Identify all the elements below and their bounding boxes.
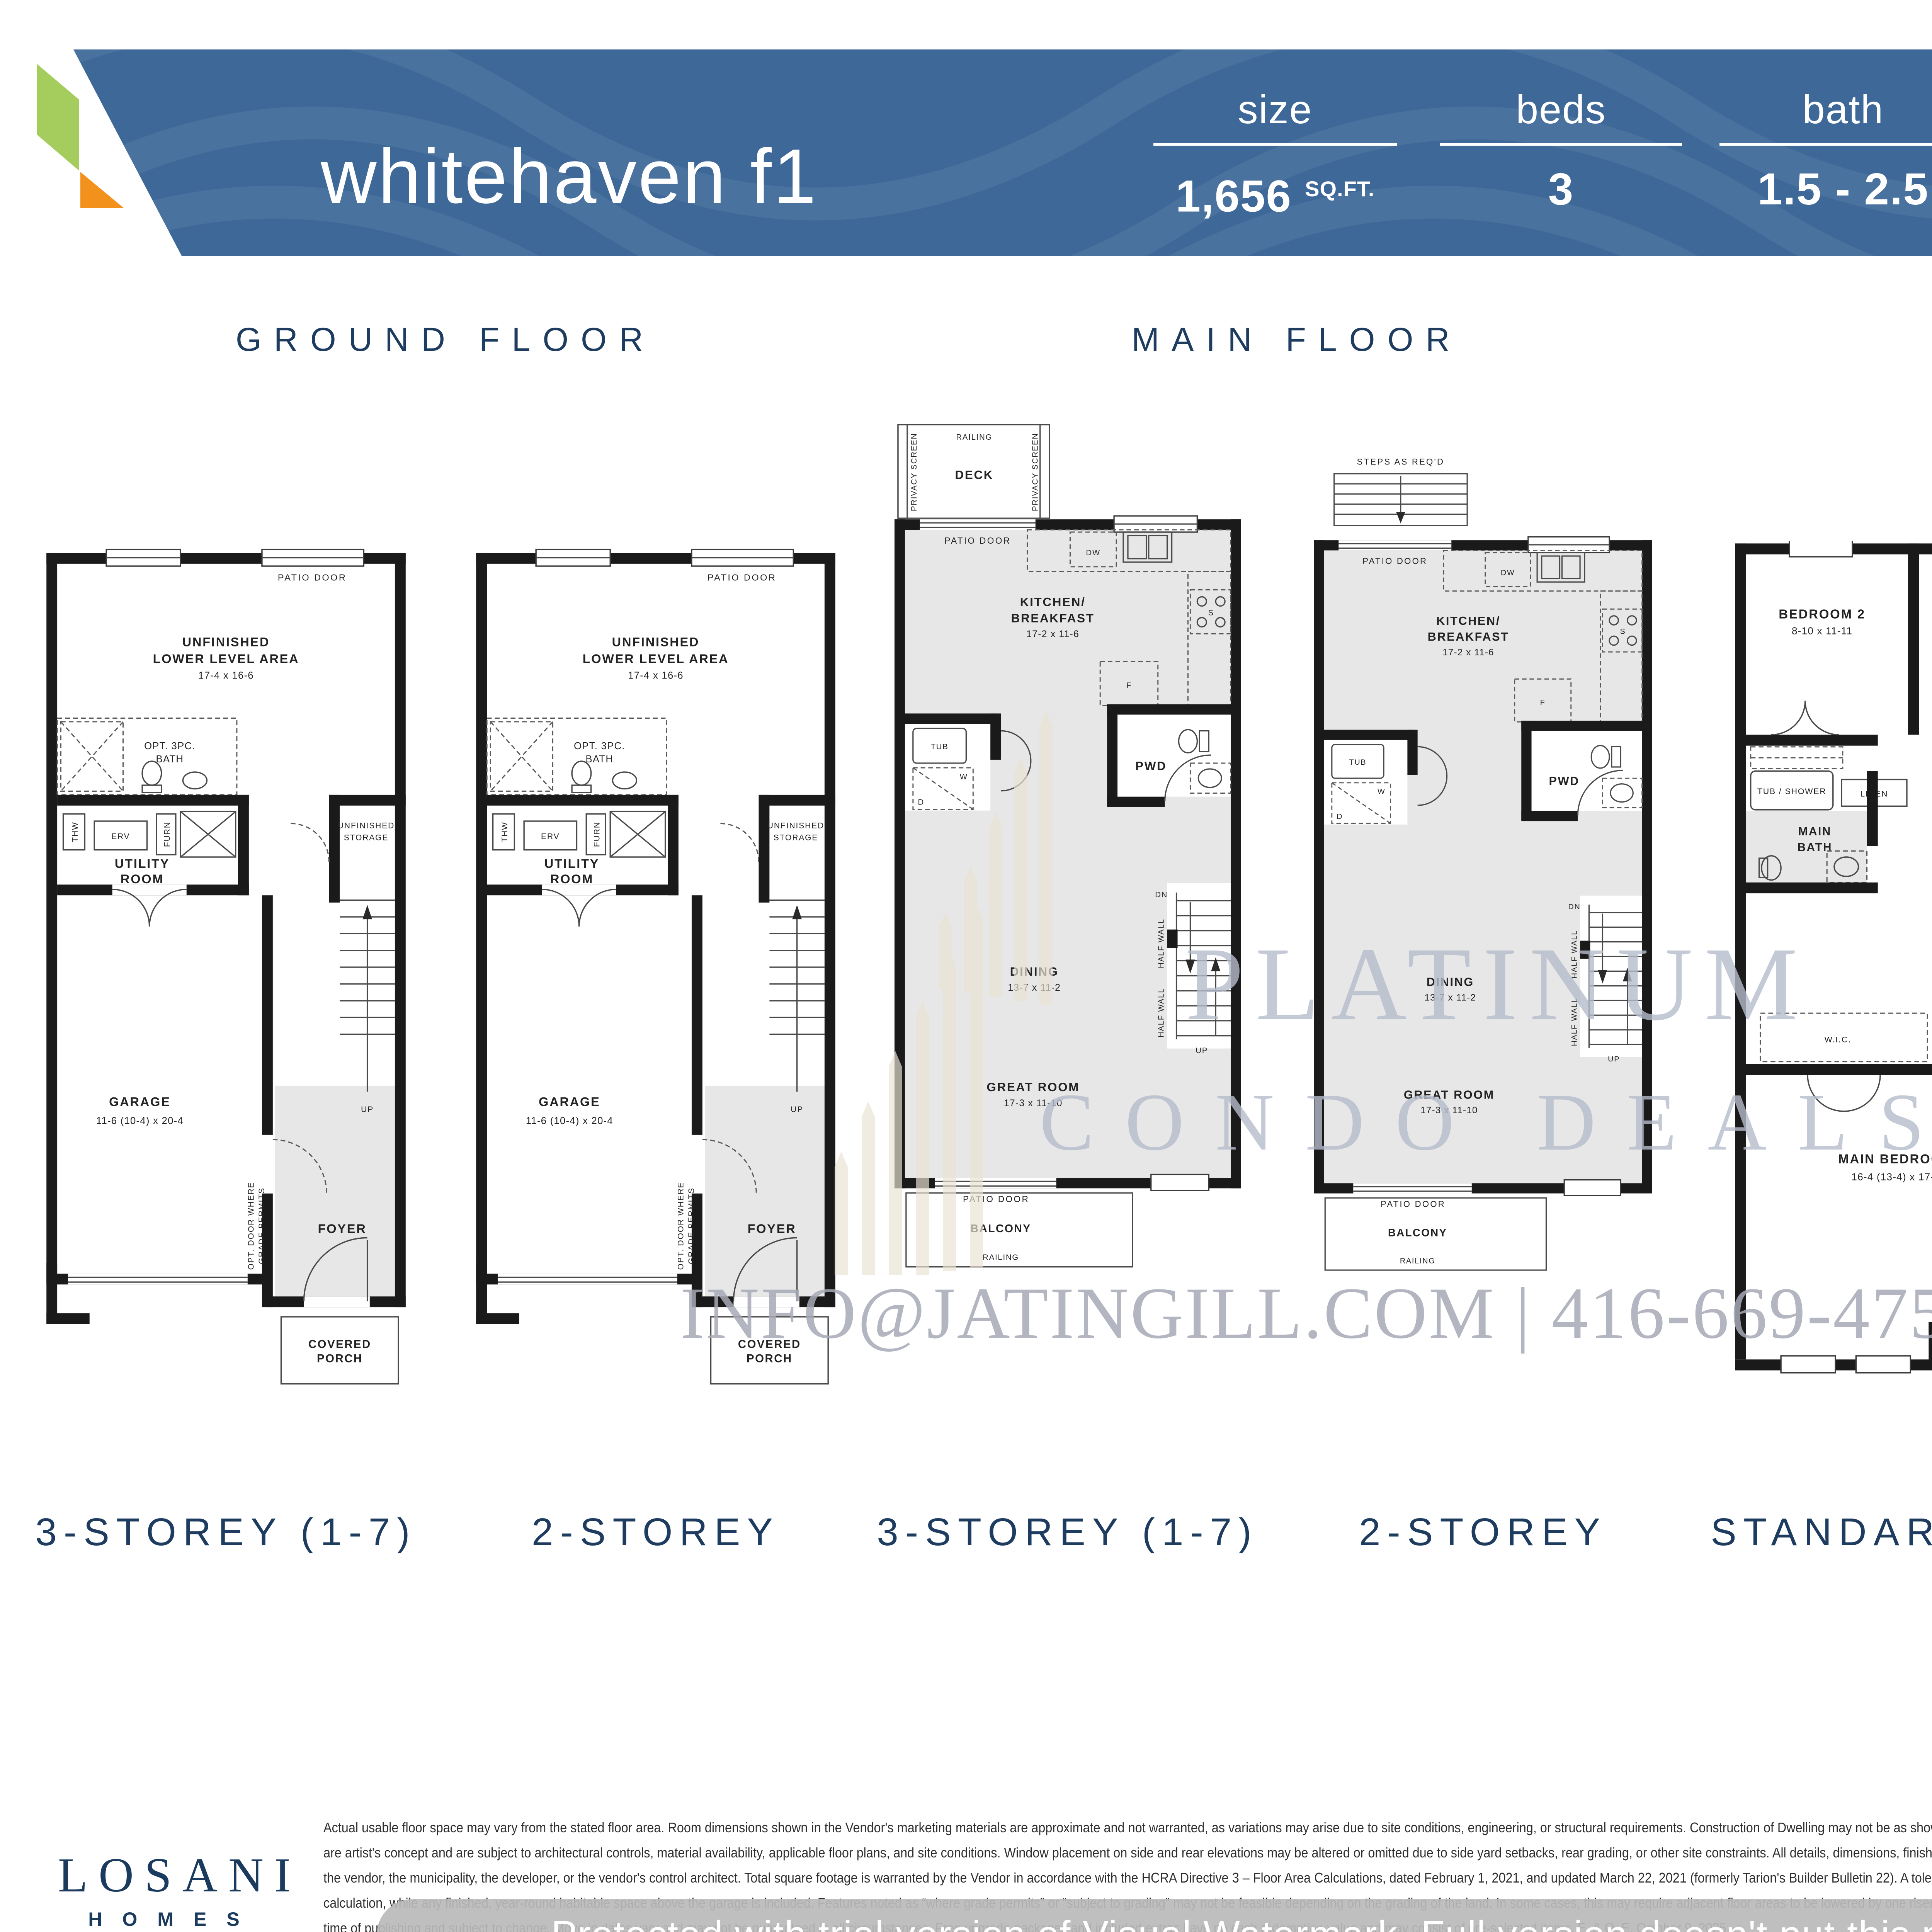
- disclaimer-line-2: are artist's concept and are subject to …: [323, 1846, 1932, 1860]
- plan1-utility-2: ROOM: [121, 872, 164, 886]
- disclaimer-line-1: Actual usable floor space may vary from …: [323, 1821, 1932, 1835]
- plan1-patio-door: PATIO DOOR: [278, 572, 347, 582]
- section-ground-floor: GROUND FLOOR: [136, 321, 755, 359]
- plan1-up: UP: [361, 1105, 374, 1114]
- watermark-line1: PLATINUM: [1034, 923, 1932, 1044]
- stat-size-value: 1,656 SQ.FT.: [1140, 166, 1410, 219]
- plan3-dw: DW: [1086, 549, 1100, 557]
- plan2-patio-door: PATIO DOOR: [707, 572, 776, 582]
- plan1-opt-bath-1: OPT. 3PC.: [144, 741, 196, 752]
- plan3-kitchen-1: KITCHEN/: [1020, 595, 1086, 609]
- plan5-main-bath-1: MAIN: [1798, 825, 1832, 838]
- plan1-furn: FURN: [163, 821, 172, 847]
- plan1-opt-bath-2: BATH: [156, 754, 184, 765]
- plan5-main-bath-2: BATH: [1798, 841, 1832, 854]
- plan4-dn: DN: [1568, 903, 1580, 911]
- plan4-railing-bottom: RAILING: [1400, 1257, 1435, 1265]
- stat-bath-label: bath: [1708, 90, 1932, 130]
- plan1-porch-1: COVERED: [308, 1338, 371, 1350]
- plan3-privacy-left: PRIVACY SCREEN: [910, 433, 918, 511]
- plan3-pwd: PWD: [1135, 759, 1167, 773]
- plan1-erv: ERV: [111, 832, 130, 841]
- plan3-deck: DECK: [955, 468, 993, 481]
- caption-main-2storey: 2-STOREY: [1232, 1510, 1734, 1554]
- stat-beds-value: 3: [1426, 166, 1696, 212]
- plan1-porch-2: PORCH: [317, 1352, 363, 1365]
- plan2-storage-2: STORAGE: [774, 833, 818, 842]
- stat-beds-label: beds: [1426, 90, 1696, 130]
- plan4-kitchen-1: KITCHEN/: [1436, 614, 1500, 628]
- plan3-stove: S: [1208, 609, 1214, 617]
- watermark-contact: INFO@JATINGILL.COM | 416-669-4755: [502, 1271, 1932, 1355]
- caption-second-standard: STANDARD PLAN: [1665, 1510, 1932, 1554]
- plan3-kitchen-dims: 17-2 x 11-6: [1026, 629, 1079, 639]
- plan5-bedroom2-dims: 8-10 x 11-11: [1792, 625, 1852, 636]
- stat-size-label: size: [1140, 90, 1410, 130]
- plan2-erv: ERV: [541, 832, 560, 841]
- plan2-unfinished-2: LOWER LEVEL AREA: [583, 652, 729, 666]
- plan1-unfinished-1: UNFINISHED: [182, 635, 270, 649]
- plan1-unfinished-dims: 17-4 x 16-6: [198, 670, 254, 681]
- plan4-kitchen-dims: 17-2 x 11-6: [1442, 647, 1494, 658]
- plan2-opt-bath-2: BATH: [586, 754, 614, 765]
- plan4-up: UP: [1608, 1055, 1620, 1063]
- plan4-fridge: F: [1540, 698, 1546, 707]
- plan4-kitchen-2: BREAKFAST: [1428, 630, 1509, 643]
- plan3-privacy-right: PRIVACY SCREEN: [1031, 433, 1040, 511]
- disclaimer-line-3: the vendor, the municipality, the develo…: [323, 1871, 1932, 1885]
- stat-bath-value: 1.5 - 2.5: [1708, 166, 1932, 212]
- plan1-garage-dims: 11-6 (10-4) x 20-4: [96, 1116, 184, 1126]
- plan2-thw: THW: [500, 821, 509, 842]
- plan4-pwd: PWD: [1549, 775, 1580, 788]
- plan4-tub: TUB: [1349, 758, 1366, 767]
- plan1-opt-door-2: GRADE PERMITS: [257, 1187, 266, 1264]
- plan1-garage: GARAGE: [109, 1095, 170, 1109]
- plan3-up: UP: [1196, 1047, 1208, 1055]
- plan1-storage-1: UNFINISHED: [338, 821, 395, 830]
- plan2-utility-1: UTILITY: [544, 857, 599, 871]
- plan2-up: UP: [791, 1105, 803, 1114]
- plan2-opt-door-1: OPT. DOOR WHERE: [676, 1182, 685, 1270]
- watermark-line2: CONDO DEALS: [995, 1075, 1932, 1169]
- page-title: whitehaven f1: [321, 136, 862, 217]
- flyer-page: whitehaven f1 size 1,656 SQ.FT. beds 3 b…: [0, 0, 1932, 1932]
- plan5-bedroom2: BEDROOM 2: [1779, 607, 1866, 621]
- plan5-tub-shower: TUB / SHOWER: [1757, 787, 1827, 796]
- stat-bath: bath 1.5 - 2.5: [1708, 90, 1932, 212]
- plan3-fridge: F: [1126, 682, 1132, 690]
- plan4-patio-door-bottom: PATIO DOOR: [1381, 1199, 1446, 1209]
- plan2-furn: FURN: [592, 821, 601, 847]
- plan2-garage-dims: 11-6 (10-4) x 20-4: [526, 1116, 613, 1126]
- plan2-opt-door-2: GRADE PERMITS: [687, 1187, 696, 1264]
- plan4-washer: W: [1378, 787, 1385, 796]
- losani-homes-label: HOMES: [58, 1908, 290, 1930]
- plan1-storage-2: STORAGE: [344, 833, 389, 842]
- stat-size-rule: [1153, 143, 1397, 146]
- plan1-thw: THW: [71, 821, 80, 842]
- plan4-patio-door-top: PATIO DOOR: [1362, 556, 1427, 566]
- plan5-main-bedroom-dims: 16-4 (13-4) x 17-4: [1851, 1171, 1932, 1183]
- plan2-unfinished-dims: 17-4 x 16-6: [628, 670, 684, 681]
- stat-bath-rule: [1719, 143, 1932, 146]
- plan3-dn: DN: [1155, 891, 1168, 899]
- plan1-utility-1: UTILITY: [115, 857, 170, 871]
- plan3-kitchen-2: BREAKFAST: [1011, 611, 1095, 625]
- stat-beds: beds 3: [1426, 90, 1696, 212]
- stat-size: size 1,656 SQ.FT.: [1140, 90, 1410, 219]
- plan1-foyer: FOYER: [318, 1222, 367, 1236]
- plan2-utility-2: ROOM: [550, 872, 594, 886]
- plan4-dryer: D: [1337, 812, 1343, 821]
- trial-watermark-bar: Protected with trial version of Visual W…: [377, 1899, 1932, 1932]
- section-second-floor: SECOND FLOOR: [1834, 321, 1932, 359]
- plan1-unfinished-2: LOWER LEVEL AREA: [153, 652, 299, 666]
- plan3-railing-top: RAILING: [956, 433, 992, 442]
- plan4-stove: S: [1620, 627, 1626, 636]
- plan1-opt-door-1: OPT. DOOR WHERE: [247, 1182, 255, 1270]
- losani-logo: LOSANI: [58, 1848, 290, 1903]
- plan2-unfinished-1: UNFINISHED: [612, 635, 700, 649]
- section-main-floor: MAIN FLOOR: [988, 321, 1606, 359]
- stat-size-suffix: SQ.FT.: [1305, 177, 1374, 201]
- plan2-garage: GARAGE: [539, 1095, 600, 1109]
- plan2-foyer: FOYER: [748, 1222, 796, 1236]
- plan4-dw: DW: [1501, 569, 1515, 577]
- floorplan-ground-3storey: PATIO DOOR UNFINISHED LOWER LEVEL AREA 1…: [46, 541, 406, 1476]
- stat-beds-rule: [1440, 143, 1682, 146]
- plan3-patio-door-top: PATIO DOOR: [944, 536, 1011, 546]
- plan4-steps: STEPS AS REQ'D: [1357, 457, 1445, 467]
- plan2-storage-1: UNFINISHED: [767, 821, 824, 830]
- plan2-opt-bath-1: OPT. 3PC.: [574, 741, 625, 752]
- plan4-balcony: BALCONY: [1388, 1226, 1447, 1238]
